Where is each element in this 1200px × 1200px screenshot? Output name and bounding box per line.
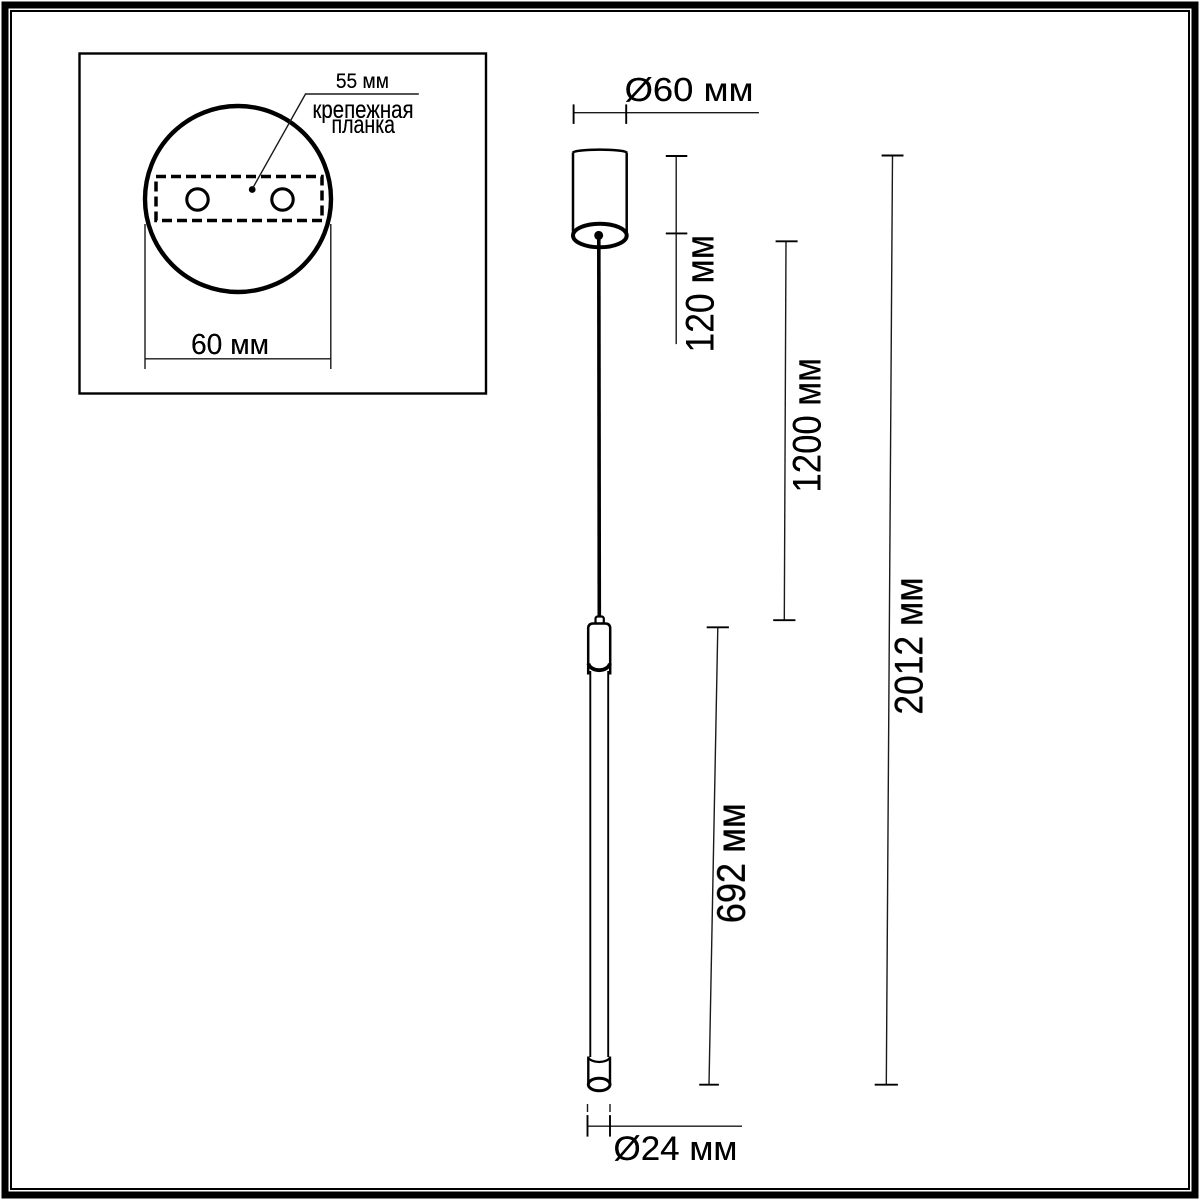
- svg-text:планка: планка: [332, 111, 396, 139]
- svg-text:Ø24 мм: Ø24 мм: [614, 1130, 738, 1168]
- svg-text:Ø60 мм: Ø60 мм: [625, 71, 754, 108]
- svg-text:1200 мм: 1200 мм: [786, 358, 830, 493]
- svg-text:2012 мм: 2012 мм: [888, 577, 932, 714]
- svg-text:60 мм: 60 мм: [191, 329, 269, 361]
- svg-text:120 мм: 120 мм: [679, 235, 723, 353]
- svg-text:692 мм: 692 мм: [710, 803, 754, 923]
- svg-text:55 мм: 55 мм: [336, 70, 389, 93]
